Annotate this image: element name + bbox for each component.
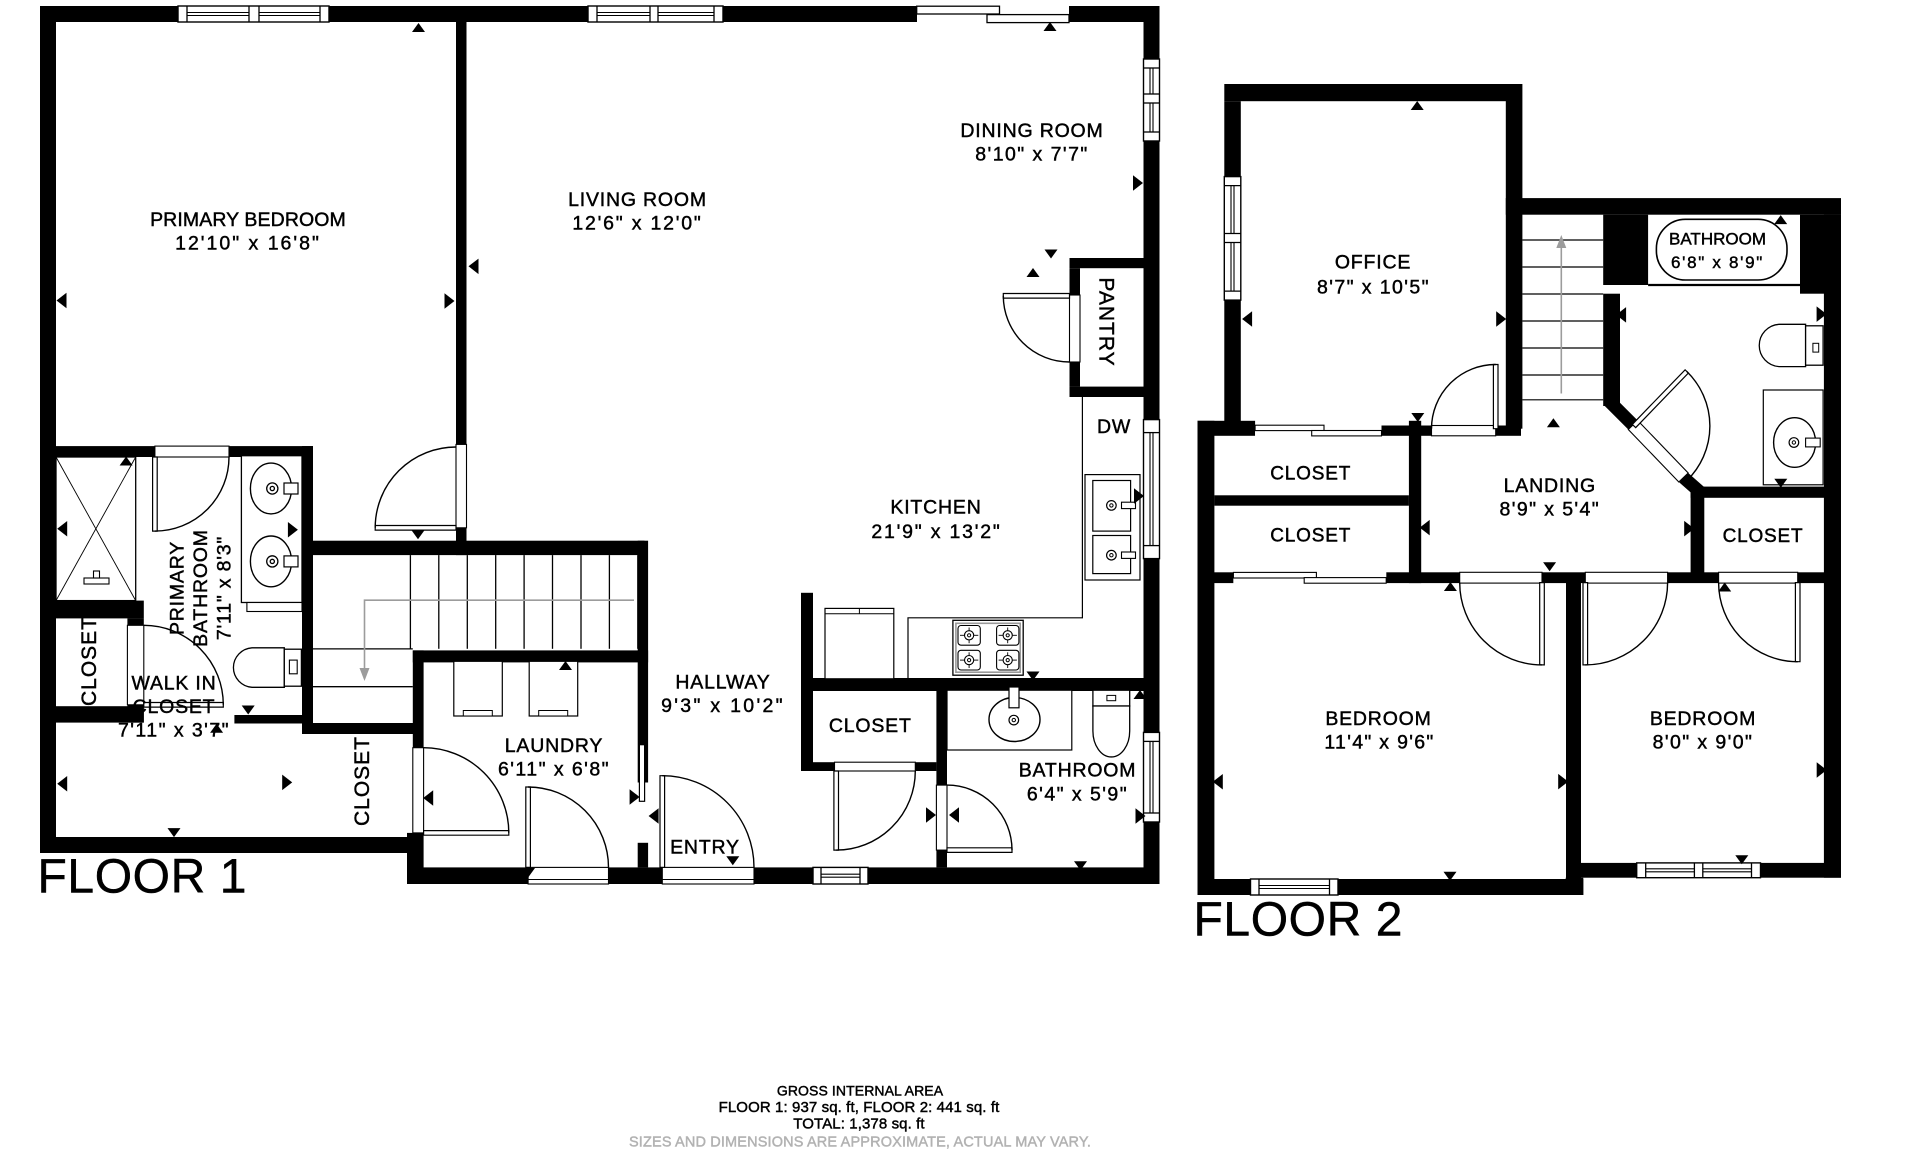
svg-text:CLOSET: CLOSET bbox=[78, 616, 101, 706]
svg-text:9'3" x 10'2": 9'3" x 10'2" bbox=[661, 695, 785, 717]
svg-text:PRIMARY BEDROOM: PRIMARY BEDROOM bbox=[150, 209, 346, 231]
svg-text:6'4" x 5'9": 6'4" x 5'9" bbox=[1027, 783, 1128, 805]
svg-text:8'0" x 9'0": 8'0" x 9'0" bbox=[1653, 732, 1754, 754]
svg-text:CLOSET: CLOSET bbox=[351, 736, 374, 826]
svg-text:SIZES AND DIMENSIONS ARE APPRO: SIZES AND DIMENSIONS ARE APPROXIMATE, AC… bbox=[629, 1135, 1091, 1151]
svg-text:OFFICE: OFFICE bbox=[1335, 252, 1411, 274]
svg-text:PANTRY: PANTRY bbox=[1095, 277, 1118, 366]
svg-text:PRIMARY: PRIMARY bbox=[167, 541, 189, 635]
svg-text:GROSS INTERNAL AREA: GROSS INTERNAL AREA bbox=[777, 1082, 944, 1098]
svg-text:11'4" x 9'6": 11'4" x 9'6" bbox=[1324, 732, 1434, 754]
svg-text:BATHROOM: BATHROOM bbox=[1669, 230, 1766, 249]
svg-text:CLOSET: CLOSET bbox=[133, 696, 216, 718]
svg-text:12'6" x 12'0": 12'6" x 12'0" bbox=[572, 212, 702, 234]
svg-text:DINING ROOM: DINING ROOM bbox=[960, 120, 1103, 142]
svg-text:6'8" x 8'9": 6'8" x 8'9" bbox=[1671, 253, 1764, 272]
svg-text:KITCHEN: KITCHEN bbox=[890, 497, 981, 519]
svg-text:LANDING: LANDING bbox=[1504, 475, 1596, 497]
svg-text:BEDROOM: BEDROOM bbox=[1650, 708, 1756, 730]
svg-text:8'10" x 7'7": 8'10" x 7'7" bbox=[975, 144, 1089, 166]
svg-text:7'11" x 8'3": 7'11" x 8'3" bbox=[214, 536, 236, 640]
svg-text:CLOSET: CLOSET bbox=[829, 715, 912, 737]
svg-text:ENTRY: ENTRY bbox=[670, 836, 740, 858]
svg-text:21'9" x 13'2": 21'9" x 13'2" bbox=[871, 521, 1001, 543]
svg-text:8'7" x 10'5": 8'7" x 10'5" bbox=[1317, 277, 1430, 299]
svg-text:CLOSET: CLOSET bbox=[1270, 464, 1351, 485]
svg-text:DW: DW bbox=[1097, 416, 1131, 438]
svg-text:LIVING ROOM: LIVING ROOM bbox=[568, 189, 707, 211]
svg-text:8'9" x 5'4": 8'9" x 5'4" bbox=[1499, 499, 1600, 521]
svg-text:TOTAL: 1,378 sq. ft: TOTAL: 1,378 sq. ft bbox=[793, 1116, 925, 1133]
svg-text:WALK IN: WALK IN bbox=[131, 673, 216, 695]
svg-text:FLOOR 2: FLOOR 2 bbox=[1194, 894, 1404, 947]
svg-text:BEDROOM: BEDROOM bbox=[1325, 708, 1431, 730]
svg-text:FLOOR 1: FLOOR 1 bbox=[38, 851, 248, 904]
svg-text:CLOSET: CLOSET bbox=[1723, 526, 1804, 547]
svg-text:12'10" x 16'8": 12'10" x 16'8" bbox=[175, 233, 321, 255]
svg-text:6'11" x 6'8": 6'11" x 6'8" bbox=[498, 758, 610, 780]
svg-text:HALLWAY: HALLWAY bbox=[675, 672, 770, 694]
svg-text:BATHROOM: BATHROOM bbox=[190, 529, 212, 647]
svg-text:BATHROOM: BATHROOM bbox=[1019, 759, 1137, 781]
svg-text:LAUNDRY: LAUNDRY bbox=[505, 735, 603, 757]
svg-text:CLOSET: CLOSET bbox=[1270, 526, 1351, 547]
svg-text:FLOOR 1: 937 sq. ft, FLOOR 2:: FLOOR 1: 937 sq. ft, FLOOR 2: 441 sq. ft bbox=[719, 1099, 1001, 1116]
